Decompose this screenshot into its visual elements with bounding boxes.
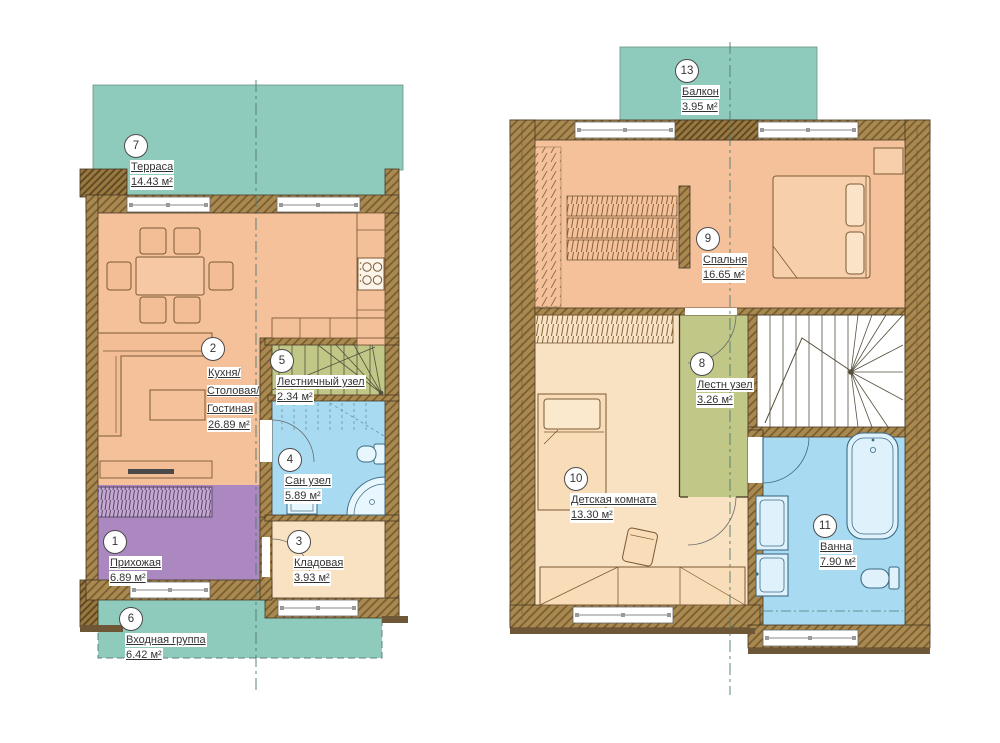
room-name: Кухня/ Столовая/ Гостиная (207, 367, 259, 415)
toilet-icon (357, 444, 385, 464)
room-name: Входная группа (125, 633, 207, 647)
stairwell-fill (757, 315, 905, 430)
bath2-door-gap (748, 437, 763, 483)
room-number-badge: 8 (690, 352, 714, 376)
wall-speckle-bottom-left (510, 628, 755, 634)
room-area: 3.26 м² (696, 393, 734, 407)
room-name: Кладовая (293, 556, 344, 570)
label-stairs2: 8 Лестн узел 3.26 м² (690, 352, 754, 408)
room-number-badge: 3 (287, 530, 311, 554)
label-hall: 1 Прихожая 6.89 м² (103, 530, 162, 586)
room-area: 13.30 м² (570, 508, 614, 522)
room-name: Детская комната (570, 493, 657, 507)
room-number-badge: 7 (124, 134, 148, 158)
room-number-badge: 1 (103, 530, 127, 554)
room-area: 5.89 м² (284, 489, 322, 503)
room-name: Прихожая (109, 556, 162, 570)
room-name: Лестничный узел (276, 375, 366, 389)
wall-speckle-left (80, 625, 123, 632)
room-number-badge: 5 (270, 349, 294, 373)
wall-speckle-bottom-right (748, 648, 930, 654)
room-number-badge: 2 (201, 337, 225, 361)
room-area: 6.42 м² (125, 648, 163, 662)
room-area: 14.43 м² (130, 175, 174, 189)
room-number-badge: 6 (119, 607, 143, 631)
sink-cabinet-bottom (755, 554, 788, 596)
room-number-badge: 9 (696, 227, 720, 251)
room-area: 16.65 м² (702, 268, 746, 282)
room-number-badge: 13 (675, 59, 699, 83)
label-entrance: 6 Входная группа 6.42 м² (119, 607, 207, 663)
label-terrace: 7 Терраса 14.43 м² (124, 134, 174, 190)
label-balcony: 13 Балкон 3.95 м² (675, 59, 720, 115)
label-bedroom: 9 Спальня 16.65 м² (696, 227, 748, 283)
room-name: Сан узел (284, 474, 332, 488)
toilet2-icon (861, 567, 899, 589)
kids-bottom-unit (540, 567, 745, 605)
room-number-badge: 4 (278, 448, 302, 472)
room-area: 26.89 м² (207, 418, 251, 432)
label-storage: 3 Кладовая 3.93 м² (287, 530, 344, 586)
room-area: 6.89 м² (109, 571, 147, 585)
hall-wardrobe (98, 487, 212, 517)
floor-plan-canvas: 7 Терраса 14.43 м² 2 Кухня/ Столовая/ Го… (0, 0, 1000, 743)
stove-icon (358, 258, 384, 290)
kids-chair (622, 527, 658, 566)
room-area: 3.93 м² (293, 571, 331, 585)
tv-console (100, 461, 212, 478)
room-number-badge: 11 (813, 514, 837, 538)
wall-speckle-right (382, 616, 408, 623)
room-name: Терраса (130, 160, 174, 174)
room-name: Балкон (681, 85, 720, 99)
bedroom-door-gap (685, 308, 737, 315)
room-area: 7.90 м² (819, 555, 857, 569)
label-kidsroom: 10 Детская комната 13.30 м² (564, 467, 657, 523)
label-bath2: 11 Ванна 7.90 м² (813, 514, 857, 570)
room-area: 3.95 м² (681, 100, 719, 114)
label-bath1: 4 Сан узел 5.89 м² (278, 448, 332, 504)
room-area: 2.34 м² (276, 390, 314, 404)
kids-wardrobe (535, 315, 673, 343)
room-name: Спальня (702, 253, 748, 267)
storage-door-gap (262, 537, 270, 577)
room-number-badge: 10 (564, 467, 588, 491)
room-name: Лестн узел (696, 378, 754, 392)
sink-cabinet-top (755, 496, 788, 550)
room-name: Ванна (819, 540, 853, 554)
label-stairs1: 5 Лестничный узел 2.34 м² (270, 349, 366, 405)
